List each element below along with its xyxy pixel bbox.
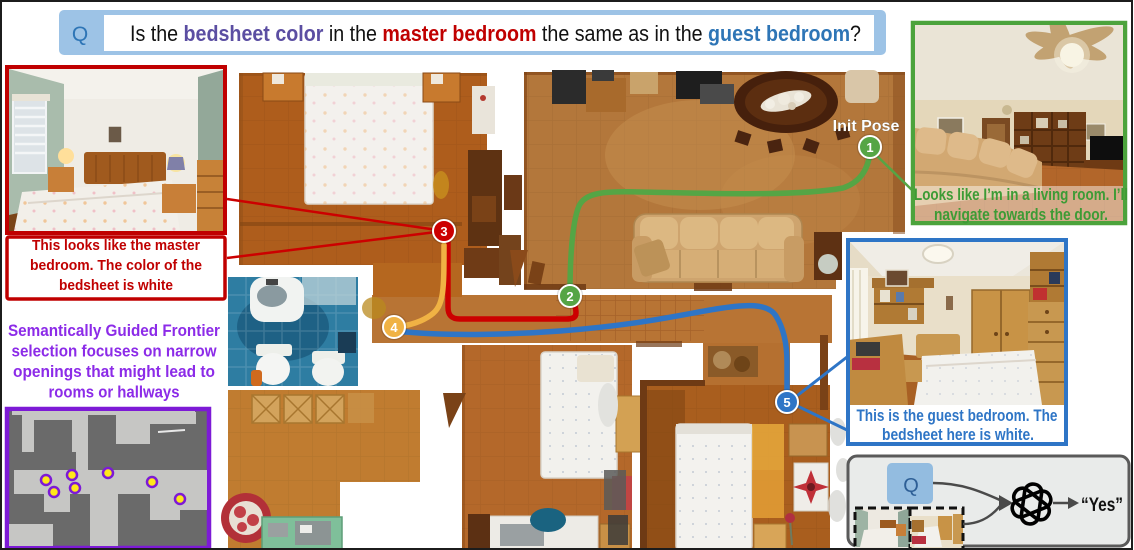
svg-text:Init Pose: Init Pose [833, 118, 900, 135]
svg-text:This looks like the master: This looks like the master [32, 238, 200, 254]
svg-text:navigate towards the door.: navigate towards the door. [934, 205, 1108, 224]
svg-text:2: 2 [566, 289, 573, 304]
svg-text:bedsheet here is white.: bedsheet here is white. [882, 425, 1034, 444]
svg-text:3: 3 [440, 224, 447, 239]
svg-text:Q: Q [903, 475, 919, 497]
svg-text:rooms or hallways: rooms or hallways [49, 383, 180, 402]
svg-text:Looks like I’m in a living roo: Looks like I’m in a living room. I’ll [914, 185, 1128, 204]
svg-text:Is the bedsheet color in the m: Is the bedsheet color in the master bedr… [130, 21, 861, 46]
svg-text:bedsheet is white: bedsheet is white [59, 278, 173, 294]
svg-text:4: 4 [390, 320, 398, 335]
svg-text:This is the guest bedroom. The: This is the guest bedroom. The [857, 406, 1058, 425]
svg-text:1: 1 [866, 140, 873, 155]
svg-text:Q: Q [72, 23, 88, 46]
svg-text:“Yes”: “Yes” [1081, 495, 1123, 516]
svg-text:bedroom. The color of the: bedroom. The color of the [30, 258, 202, 274]
svg-text:selection focuses on narrow: selection focuses on narrow [12, 342, 218, 361]
svg-text:5: 5 [783, 395, 790, 410]
svg-text:Semantically Guided Frontier: Semantically Guided Frontier [8, 321, 220, 340]
svg-text:openings that might lead to: openings that might lead to [13, 362, 215, 381]
